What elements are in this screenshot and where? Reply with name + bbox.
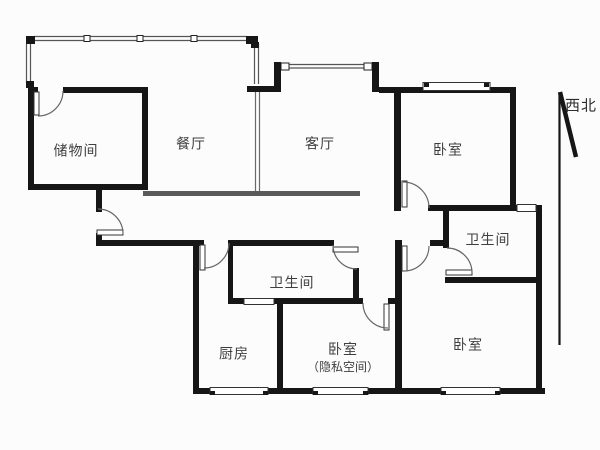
floor-plan-canvas: 储物间 餐厅 客厅 卧室 卫生间 卫生间 厨房 卧室 （隐私空间） 卧室 西北 (0, 0, 600, 450)
windows-layer (27, 37, 373, 85)
room-label-bedroom-se: 卧室 (453, 337, 483, 355)
kitchen-door-arc (204, 243, 229, 268)
window-posts (26, 36, 259, 88)
compass-north-arrow (560, 92, 577, 345)
room-label-dining: 餐厅 (176, 136, 206, 154)
dining-living-partition (256, 92, 260, 191)
ceiling-beam-line (143, 191, 360, 196)
room-label-living: 客厅 (305, 136, 335, 154)
right-bathroom-door-arc (447, 248, 472, 273)
room-label-kitchen: 厨房 (219, 346, 249, 364)
room-label-bedroom-private-sub: （隐私空间） (307, 359, 379, 374)
room-label-bath-right: 卫生间 (466, 232, 511, 250)
room-label-bedroom-private: 卧室 （隐私空间） (307, 342, 379, 375)
room-label-bath-mid: 卫生间 (270, 275, 315, 293)
hall-door-arc (404, 246, 429, 271)
floor-plan-drawing (0, 0, 600, 450)
room-label-storage: 储物间 (54, 143, 99, 161)
storage-door-arc (38, 91, 63, 116)
room-label-bedroom-ne: 卧室 (433, 142, 463, 160)
room-label-bedroom-private-main: 卧室 (307, 342, 379, 360)
compass-label: 西北 (565, 95, 597, 116)
